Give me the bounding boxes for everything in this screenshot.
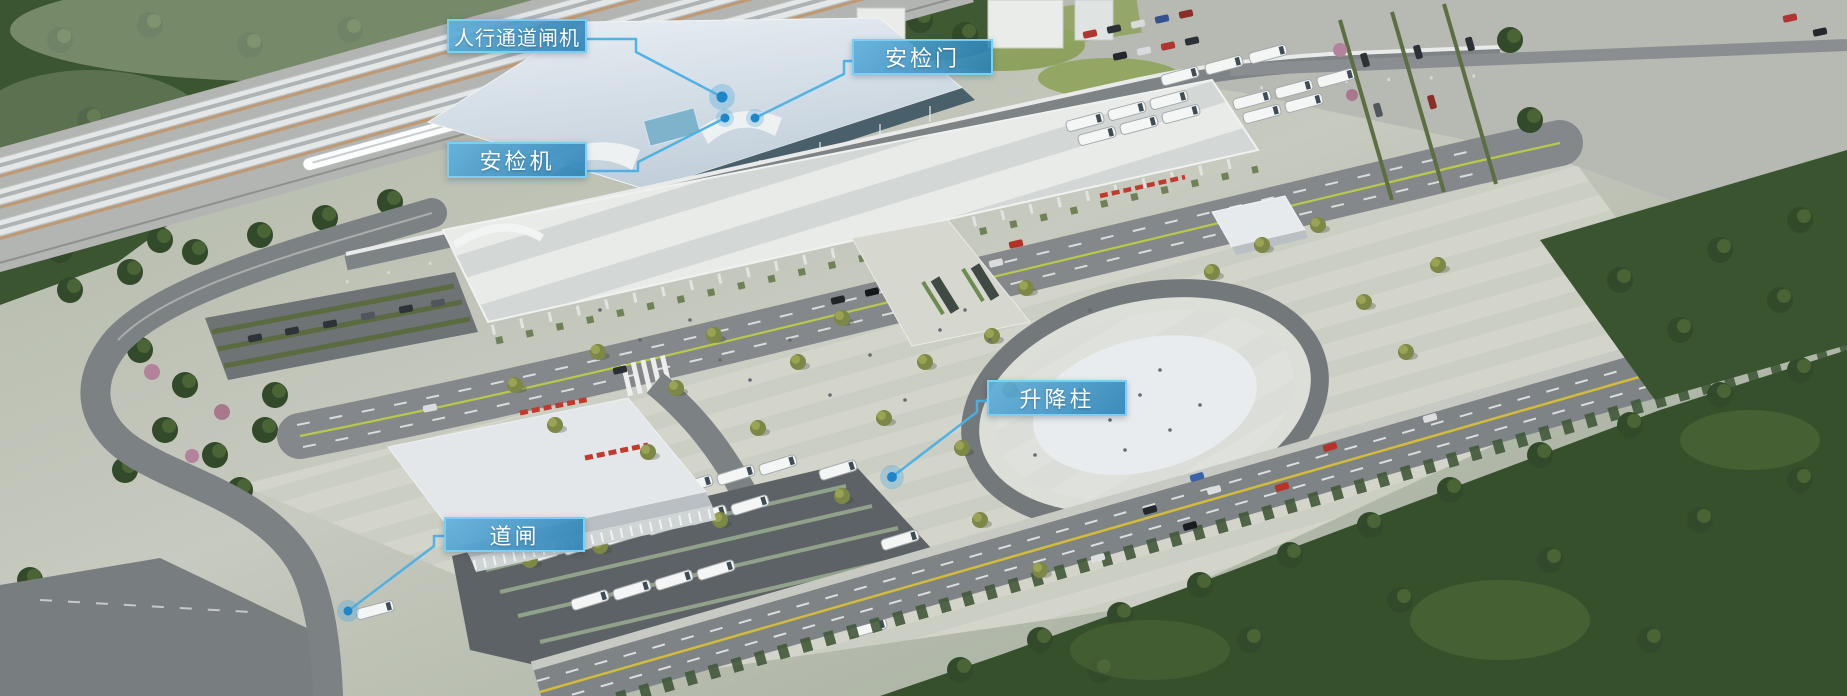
station-aerial-annotated-render: 人行通道闸机 安检门 安检机 升降柱 道闸 bbox=[0, 0, 1847, 696]
aerial-render-image bbox=[0, 0, 1847, 696]
callout-security-scanner: 安检机 bbox=[447, 142, 587, 178]
callout-security-door: 安检门 bbox=[852, 39, 993, 75]
callout-barrier-gate: 道闸 bbox=[444, 517, 585, 552]
callout-pedestrian-gate: 人行通道闸机 bbox=[447, 19, 587, 53]
callout-lifting-bollard: 升降柱 bbox=[987, 380, 1127, 416]
